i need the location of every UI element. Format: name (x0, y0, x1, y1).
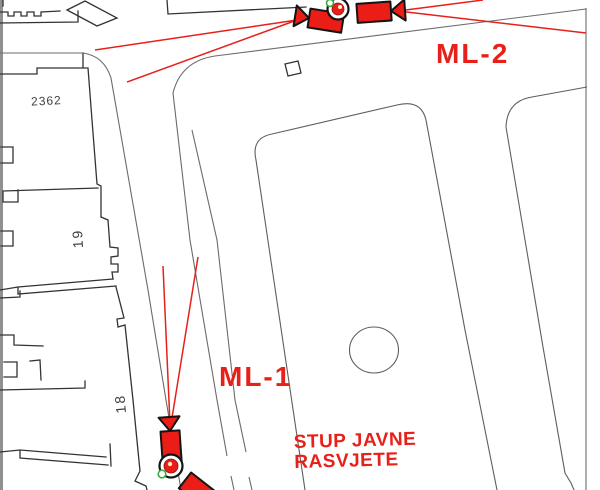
camera-label-ml1: ML-1 (219, 361, 292, 392)
parcel-number-2362: 2362 (31, 93, 62, 109)
lighting-pole-icon (158, 455, 182, 478)
house-number-19: 19 (69, 228, 86, 248)
house-number-18: 18 (111, 393, 129, 414)
lighting-pole-icon (327, 0, 349, 20)
pole-note-line2: RASVJETE (294, 449, 399, 473)
site-plan-canvas: 2362 19 18 ML-2 ML-1 STUP JAVNE RASVJETE (0, 0, 600, 490)
site-plan-drawing: 2362 19 18 ML-2 ML-1 STUP JAVNE RASVJETE (0, 0, 600, 490)
camera-label-ml2: ML-2 (436, 38, 509, 69)
